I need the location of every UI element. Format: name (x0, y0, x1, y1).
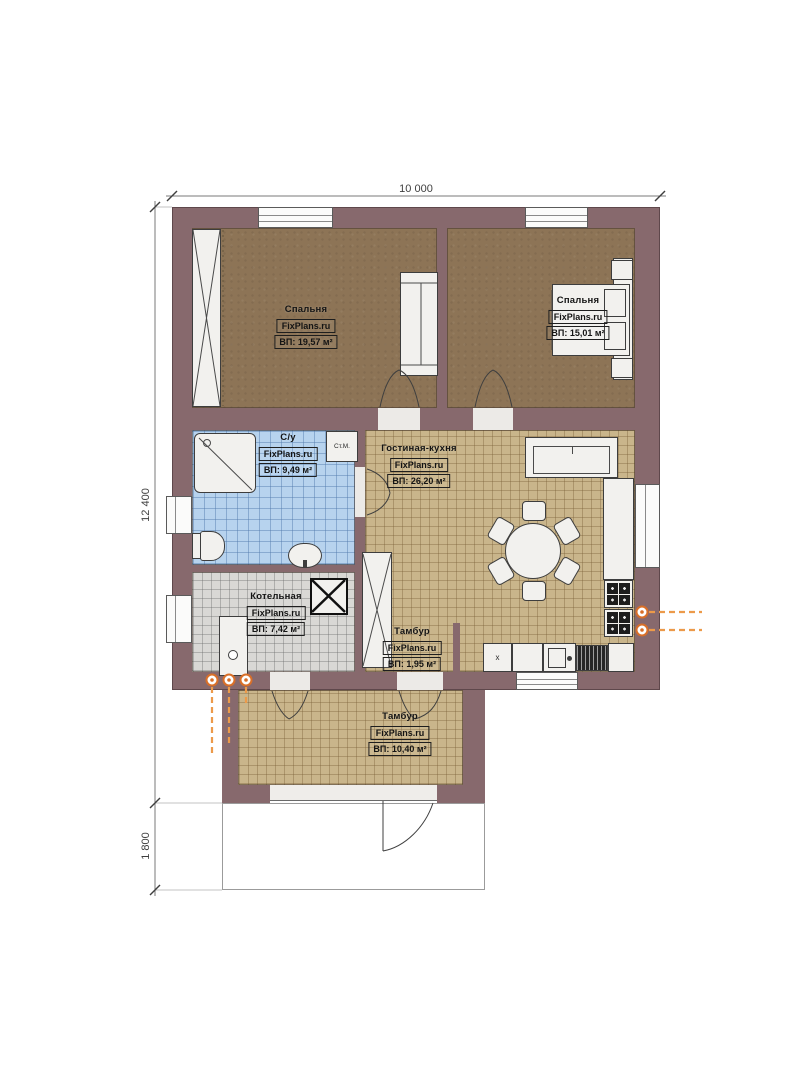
bedroom-2-door-opening (473, 408, 513, 430)
window-kitchen (516, 672, 578, 690)
window-living-room (635, 484, 660, 568)
window-bedroom-2 (525, 207, 588, 228)
room-label-vestibule-entry: Тамбур FixPlans.ru ВП: 10,40 м² (368, 711, 431, 756)
dining-chair (522, 581, 546, 601)
entrance-porch (222, 803, 485, 890)
chimney-shaft (310, 578, 348, 615)
dining-table (505, 523, 561, 579)
fridge: x (483, 643, 512, 672)
fridge-mark: x (496, 653, 500, 662)
kitchen-counter-corner (608, 643, 634, 672)
window-bathroom (166, 496, 192, 534)
vestibule-corner-right (437, 785, 485, 803)
watermark: FixPlans.ru (247, 606, 306, 620)
bathroom-door-opening (355, 467, 365, 517)
nightstand-bottom (611, 358, 633, 378)
room-area: ВП: 19,57 м² (274, 335, 337, 349)
boiler-vestibule-door-opening (270, 672, 310, 690)
watermark: FixPlans.ru (390, 458, 449, 472)
watermark: FixPlans.ru (383, 641, 442, 655)
vestibule-entry-band (270, 785, 437, 801)
boiler-dial (228, 650, 238, 660)
washing-machine: Ст.М. (326, 431, 358, 462)
sofa (525, 437, 618, 478)
room-name: С/у (280, 432, 295, 443)
kitchen-stub-wall (453, 623, 460, 672)
room-area: ВП: 26,20 м² (387, 474, 450, 488)
gas-hob-upper (604, 580, 633, 608)
watermark: FixPlans.ru (371, 726, 430, 740)
room-label-boiler-room: Котельная FixPlans.ru ВП: 7,42 м² (247, 591, 306, 636)
room-name: Тамбур (382, 711, 418, 722)
room-name: Спальня (285, 304, 327, 315)
room-label-bathroom: С/у FixPlans.ru ВП: 9,49 м² (259, 432, 318, 477)
watermark: FixPlans.ru (259, 447, 318, 461)
dimension-overall-width: 10 000 (399, 183, 433, 195)
room-name: Спальня (557, 295, 599, 306)
room-label-vestibule-small: Тамбур FixPlans.ru ВП: 1,95 м² (383, 626, 442, 671)
window-bedroom-1 (258, 207, 333, 228)
room-area: ВП: 1,95 м² (383, 657, 441, 671)
room-label-bedroom-2: Спальня FixPlans.ru ВП: 15,01 м² (546, 295, 609, 340)
room-name: Тамбур (394, 626, 430, 637)
bathroom-sink-drain (303, 560, 307, 568)
toilet-bowl (200, 531, 225, 561)
dining-chair (522, 501, 546, 521)
shower-cabin (194, 433, 256, 493)
kitchen-sink (543, 643, 576, 672)
wardrobe-bedroom-1 (192, 229, 221, 407)
dimension-porch-height: 1 800 (140, 832, 152, 860)
watermark: FixPlans.ru (277, 319, 336, 333)
dimension-main-height: 12 400 (140, 488, 152, 522)
window-boiler-room (166, 595, 192, 643)
room-area: ВП: 15,01 м² (546, 326, 609, 340)
floor-plan-canvas: Ст.М. x (0, 0, 792, 1080)
boiler-unit (219, 616, 248, 676)
kitchen-counter-right (603, 478, 634, 580)
house-vestibule-door-opening (397, 672, 443, 690)
cabinet-bedroom-1 (400, 272, 438, 376)
bedroom-1-door-opening (378, 408, 420, 430)
washing-machine-label: Ст.М. (334, 443, 350, 450)
gas-hob-lower (604, 609, 633, 637)
kitchen-cabinet (512, 643, 543, 672)
room-name: Гостиная-кухня (381, 443, 457, 454)
vestibule-corner-left (222, 785, 270, 803)
room-area: ВП: 9,49 м² (259, 463, 317, 477)
room-area: ВП: 7,42 м² (247, 622, 305, 636)
room-name: Котельная (250, 591, 302, 602)
watermark: FixPlans.ru (549, 310, 608, 324)
room-label-living-kitchen: Гостиная-кухня FixPlans.ru ВП: 26,20 м² (381, 443, 457, 488)
room-area: ВП: 10,40 м² (368, 742, 431, 756)
room-label-bedroom-1: Спальня FixPlans.ru ВП: 19,57 м² (274, 304, 337, 349)
nightstand-top (611, 260, 633, 280)
dishwasher (576, 645, 608, 671)
